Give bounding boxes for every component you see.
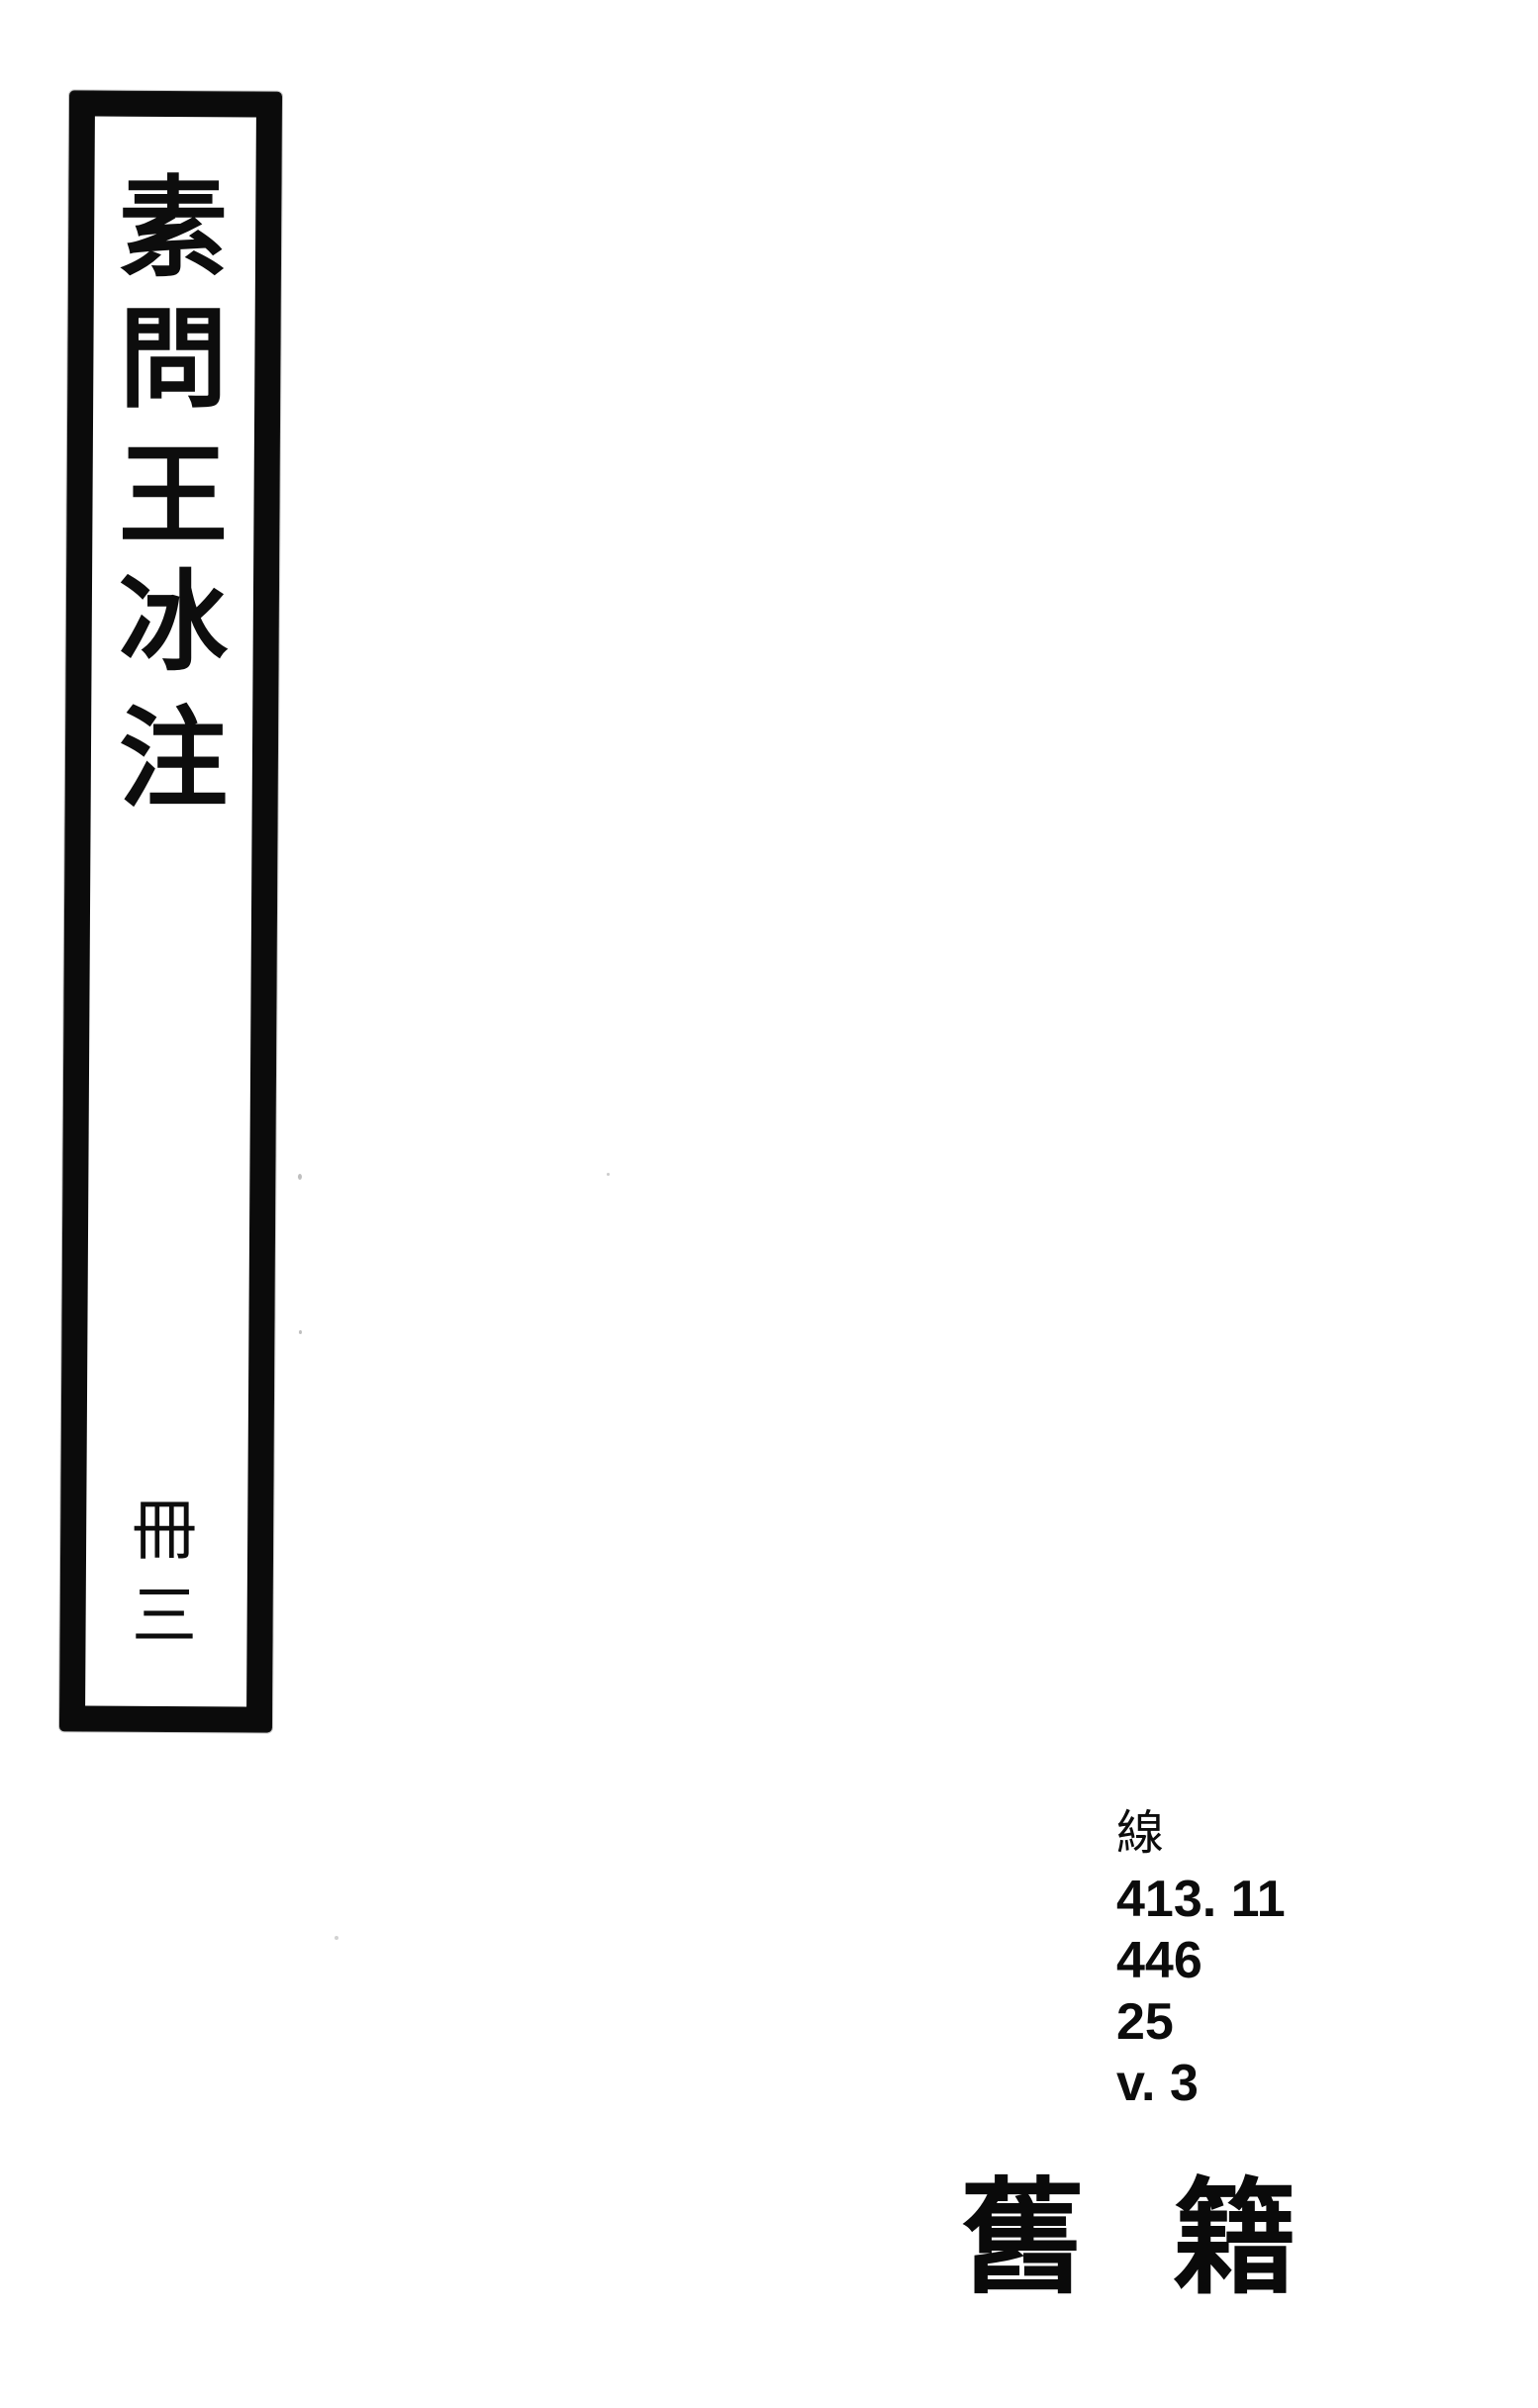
call-number-line-4: v. 3 (1116, 2058, 1199, 2109)
title-char-3: 王 (89, 441, 257, 550)
title-char-1: 素 (89, 174, 257, 283)
scan-speck (335, 1936, 338, 1940)
call-number-line-3: 25 (1116, 1996, 1174, 2048)
call-number-line-1: 413. 11 (1116, 1874, 1286, 1925)
title-char-2: 問 (89, 305, 257, 414)
title-char-5: 注 (89, 705, 257, 814)
stamp-char-1: 舊 (960, 2175, 1074, 2300)
volume-char-2: 三 (91, 1584, 238, 1649)
material-class-char: 線 (1116, 1809, 1168, 1857)
volume-char-1: 冊 (91, 1498, 238, 1564)
call-number-line-2: 446 (1116, 1935, 1202, 1986)
scanned-page: 素 問 王 冰 注 冊 三 線 413. 11 446 25 v. 3 舊 籍 (0, 0, 1538, 2408)
scan-speck (298, 1174, 302, 1180)
scan-speck (607, 1173, 610, 1176)
title-char-4: 冰 (89, 568, 257, 677)
stamp-char-2: 籍 (1173, 2175, 1287, 2300)
scan-speck (299, 1330, 302, 1334)
